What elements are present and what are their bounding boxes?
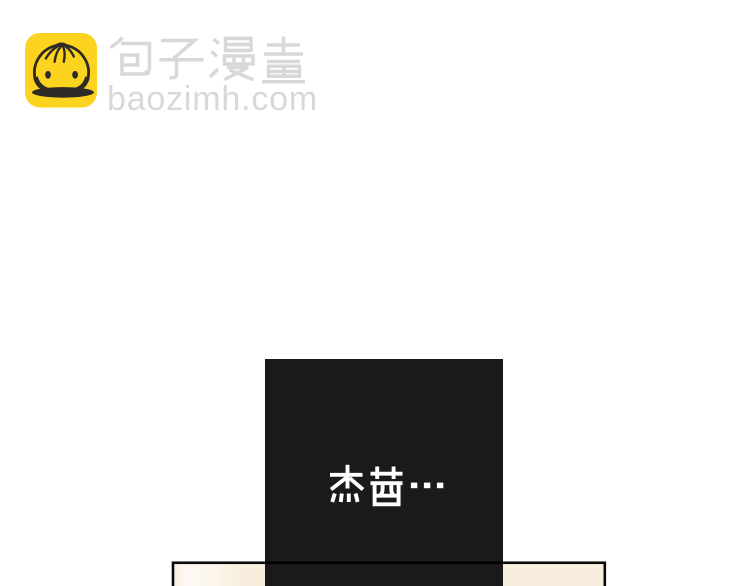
svg-text:baozimh.com: baozimh.com [107,80,318,118]
